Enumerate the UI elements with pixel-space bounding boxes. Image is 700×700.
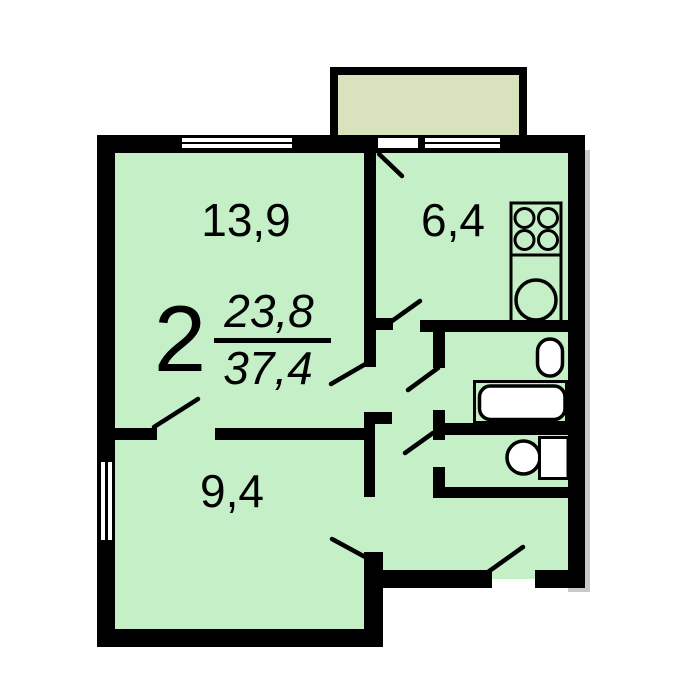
- door-swing-icon-room2-hall: [332, 539, 367, 558]
- door-swing-icon-room2-inner: [154, 399, 198, 427]
- toilet-icon: [538, 339, 563, 376]
- door-swing-icon-room1: [331, 362, 369, 384]
- door-swing-icon-balcony: [379, 154, 402, 176]
- cabinet-icon: [540, 438, 569, 479]
- room-count-label: 2: [154, 285, 206, 393]
- door-swing-icon-entrance: [488, 547, 523, 572]
- room2-area-label: 9,4: [200, 464, 264, 518]
- door-swing-icon-bathroom: [408, 368, 438, 390]
- washbasin-icon: [507, 441, 540, 474]
- door-swing-icon-wc: [405, 433, 433, 453]
- kitchen-area-label: 6,4: [421, 193, 485, 247]
- kitchen-sink-icon: [511, 255, 561, 322]
- living-area-label: 23,8: [224, 284, 314, 338]
- fixtures-layer: [0, 0, 700, 700]
- floor-plan: 13,9 6,4 9,4 2 23,8 37,4: [0, 0, 700, 700]
- room1-area-label: 13,9: [201, 193, 291, 247]
- total-area-label: 37,4: [223, 341, 313, 395]
- stove-icon: [511, 203, 561, 255]
- door-swing-icon-kitchen: [385, 301, 420, 326]
- bathtub-icon: [475, 382, 567, 423]
